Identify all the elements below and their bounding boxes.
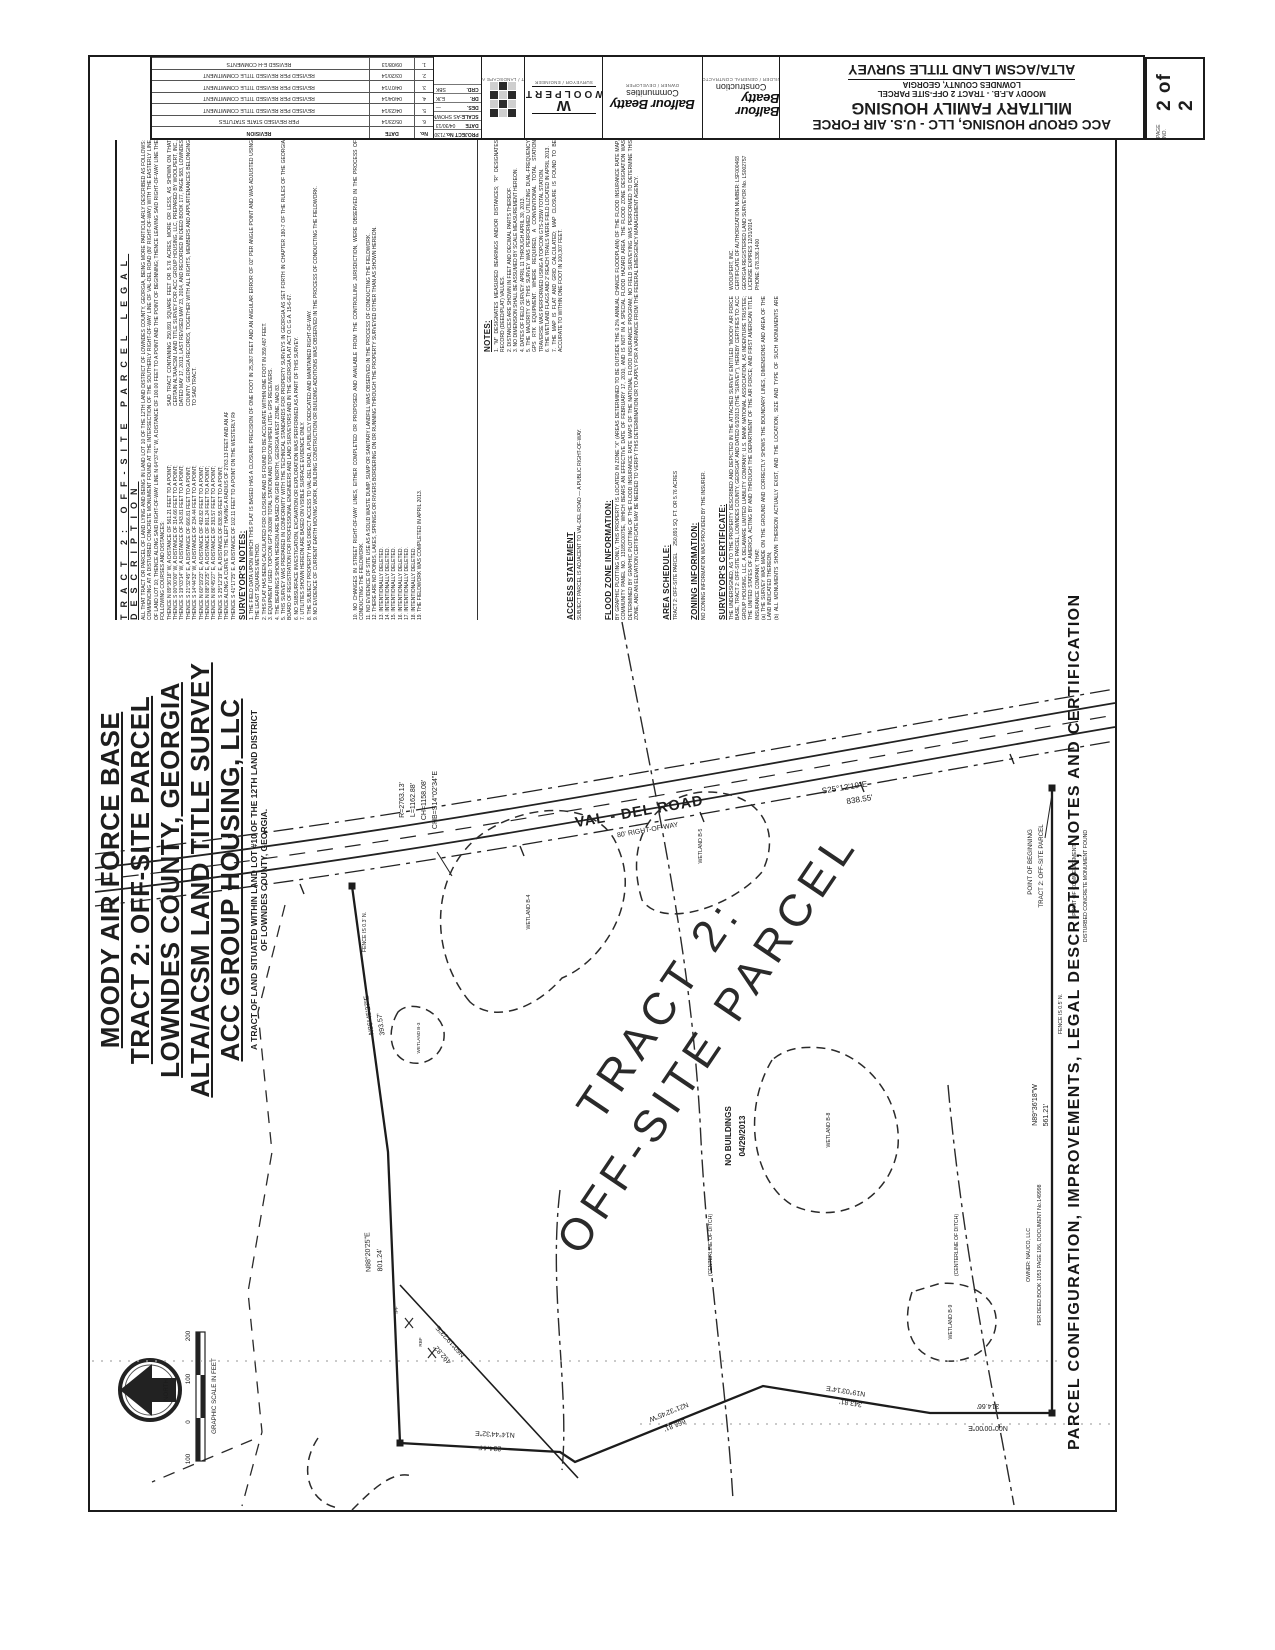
zoning-text: NO ZONING INFORMATION WAS PROVIDED BY TH… bbox=[701, 140, 707, 620]
revision-table-body: 6.05/23/14PER REVISED STATE STATUTES5.04… bbox=[152, 58, 433, 127]
title-block-strip: ACC GROUP HOUSING, LLC - U.S. AIR FORCE … bbox=[150, 55, 1145, 140]
balfour-communities-sub: Communities bbox=[626, 89, 679, 99]
svg-text:RBF: RBF bbox=[418, 1337, 423, 1346]
legal-description-calls: THENCE N 89°36'18" W, A DISTANCE OF 561.… bbox=[167, 412, 235, 620]
date: 05/23/14 bbox=[369, 116, 414, 127]
tract-2-big-label: TRACT 2: OFF-SITE PARCEL bbox=[498, 788, 868, 1263]
svg-text:234.44': 234.44' bbox=[478, 1443, 501, 1451]
table-row: DATE04/30/13 bbox=[434, 120, 481, 129]
text-line: 9. NO EVIDENCE OF CURRENT EARTH MOVING W… bbox=[313, 140, 319, 620]
svg-text:0: 0 bbox=[185, 1420, 192, 1424]
text-line: 1. "M" DESIGNATES MEASURED BEARINGS AND/… bbox=[494, 140, 507, 352]
legal-description-closing: SAID TRACT CONTAINING 250,891 SQUARE FEE… bbox=[167, 140, 199, 406]
parcel-boundary bbox=[349, 785, 1055, 1478]
table-row: 4.04/04/14REVISED PER REVISED TITLE COMM… bbox=[152, 92, 433, 104]
svg-text:OFF-SITE PARCEL: OFF-SITE PARCEL bbox=[546, 820, 867, 1262]
revision-table: No. DATE REVISION 6.05/23/14PER REVISED … bbox=[152, 57, 433, 138]
balfour-communities-logo-cell: Balfour Beatty Communities OWNER / DEVEL… bbox=[602, 57, 702, 138]
svg-text:WETLAND B-9: WETLAND B-9 bbox=[948, 1304, 954, 1339]
access-statement-section: ACCESS STATEMENT SUBJECT PARCEL IS ADJAC… bbox=[566, 395, 602, 620]
svg-text:343.81': 343.81' bbox=[839, 1397, 863, 1407]
text-line: CERTIFICATE OF AUTHORIZATION NUMBER: LSF… bbox=[735, 140, 741, 290]
svg-text:CHB=S14°02'34"E: CHB=S14°02'34"E bbox=[431, 771, 439, 830]
svg-text:801.24': 801.24' bbox=[377, 1249, 385, 1272]
area-schedule-row: TRACT 2: OFF-SITE PARCEL 250,891 SQ. FT.… bbox=[673, 140, 679, 620]
svg-text:N00°00'00"E: N00°00'00"E bbox=[968, 1424, 1008, 1432]
text-line: (a) THE SURVEY WAS MADE ON THE GROUND AN… bbox=[761, 296, 774, 620]
area-schedule-value: 250,891 SQ. FT. OR 5.76 ACRES bbox=[673, 471, 679, 546]
survey-map: VAL - DEL ROAD 80' RIGHT-OF-WAY S25°12'1… bbox=[88, 600, 1118, 1512]
graphic-scale-bar: 200 100 0 100 GRAPHIC SCALE IN FEET bbox=[185, 1330, 218, 1464]
certificate-items: (a) THE SURVEY WAS MADE ON THE GROUND AN… bbox=[761, 296, 780, 620]
svg-text:100: 100 bbox=[185, 1373, 192, 1384]
svg-text:GRAPHIC SCALE IN FEET: GRAPHIC SCALE IN FEET bbox=[211, 1358, 218, 1434]
balfour-construction-logo: Balfour Beatty bbox=[703, 92, 780, 118]
parcel-title: MOODY A.F.B. - TRACT 2 OFF-SITE PARCEL bbox=[878, 90, 1046, 99]
no: 6. bbox=[414, 116, 433, 127]
balfour-communities-logo: Balfour Beatty bbox=[610, 99, 695, 112]
page-number: PAGE NO. 2 of 2 bbox=[1147, 57, 1205, 138]
notes-items: 1. "M" DESIGNATES MEASURED BEARINGS AND/… bbox=[494, 140, 563, 352]
text-line: 19. THE FIELDWORK WAS COMPLETED IN APRIL… bbox=[417, 140, 423, 620]
text-line: THENCE ALONG A CURVE TO THE LEFT HAVING … bbox=[224, 412, 230, 620]
value: — bbox=[436, 104, 441, 110]
project-title-block: ACC GROUP HOUSING, LLC - U.S. AIR FORCE … bbox=[779, 57, 1143, 138]
svg-text:POINT OF BEGINNING: POINT OF BEGINNING bbox=[1027, 829, 1034, 895]
svg-text:DISTURBED CONCRETE MONUMENT FO: DISTURBED CONCRETE MONUMENT FOUND bbox=[1083, 830, 1089, 943]
svg-text:IPF: IPF bbox=[394, 1306, 399, 1313]
date: 04/07/14 bbox=[369, 82, 414, 93]
access-statement-text: SUBJECT PARCEL IS ADJACENT TO VAL-DEL RO… bbox=[577, 395, 583, 620]
svg-text:WETLAND B-4: WETLAND B-4 bbox=[526, 894, 532, 929]
area-schedule-heading: AREA SCHEDULE: bbox=[662, 140, 671, 620]
balfour-construction-sub: Construction bbox=[716, 82, 767, 92]
desc: REVISED E-H COMMENTS bbox=[152, 59, 369, 70]
surveyors-certificate-heading: SURVEYOR'S CERTIFICATE: bbox=[718, 140, 727, 620]
client-title: ACC GROUP HOUSING, LLC - U.S. AIR FORCE bbox=[812, 118, 1111, 133]
date: 03/20/14 bbox=[369, 70, 414, 81]
revision-col-date: DATE bbox=[369, 128, 414, 139]
legal-description-heading: TRACT 2: OFF-SITE PARCEL LEGAL DESCRIPTI… bbox=[119, 140, 139, 620]
svg-text:N88°20'25"E: N88°20'25"E bbox=[363, 1232, 372, 1272]
svg-text:(CENTERLINE OF DITCH): (CENTERLINE OF DITCH) bbox=[708, 1214, 714, 1277]
woolpert-caption: SURVEYOR / ENGINEER bbox=[535, 80, 593, 85]
desc: PER REVISED STATE STATUTES bbox=[152, 116, 369, 127]
date: 09/08/13 bbox=[369, 59, 414, 70]
surveyors-notes-section: SURVEYOR'S NOTES: 1. THE FIELD DATA UPON… bbox=[238, 140, 350, 620]
scanned-survey-page: { "title_strip": { "title_block": { "lin… bbox=[0, 0, 1275, 1650]
svg-text:WETLAND B-5: WETLAND B-5 bbox=[698, 828, 704, 863]
no: 5. bbox=[414, 105, 433, 116]
table-row: DES.— bbox=[434, 102, 481, 111]
woolpert-logo-cell: W WOOLPERT SURVEYOR / ENGINEER bbox=[524, 57, 602, 138]
access-statement-heading: ACCESS STATEMENT bbox=[566, 395, 575, 620]
project-title: MILITARY FAMILY HOUSING bbox=[851, 99, 1072, 118]
label: DES. bbox=[467, 104, 479, 110]
communities-caption: OWNER / DEVELOPER bbox=[626, 84, 680, 89]
svg-text:VAL - DEL ROAD: VAL - DEL ROAD bbox=[574, 793, 705, 831]
zoning-heading: ZONING INFORMATION: bbox=[690, 140, 699, 620]
svg-text:S25°12'19"E: S25°12'19"E bbox=[821, 779, 868, 795]
svg-text:FENCE IS 0.5' N.: FENCE IS 0.5' N. bbox=[1058, 994, 1064, 1034]
date: 04/23/14 bbox=[369, 105, 414, 116]
no: 2. bbox=[414, 70, 433, 81]
text-line: 6. THE WETLAND FLAGS AND 2' REACH TRAILS… bbox=[545, 140, 551, 352]
desc: REVISED PER REVISED TITLE COMMITMENT bbox=[152, 70, 369, 81]
county-title: LOWNDES COUNTY, GEORGIA bbox=[903, 81, 1021, 90]
date: 04/04/14 bbox=[369, 93, 414, 104]
svg-text:N89°36'18"W: N89°36'18"W bbox=[1031, 1084, 1039, 1126]
label: SCALE: bbox=[460, 113, 479, 119]
svg-text:666.81': 666.81' bbox=[663, 1417, 687, 1432]
svg-text:POINT OF COMMENCEMENT: POINT OF COMMENCEMENT bbox=[1072, 843, 1078, 915]
flood-zone-heading: FLOOD ZONE INFORMATION: bbox=[604, 140, 613, 620]
text-line: 10. NO CHANGES IN STREET RIGHT-OF-WAY LI… bbox=[353, 140, 366, 620]
zoning-section: ZONING INFORMATION: NO ZONING INFORMATIO… bbox=[690, 140, 716, 620]
no: 3. bbox=[414, 82, 433, 93]
desc: REVISED PER REVISED TITLE COMMITMENT bbox=[152, 82, 369, 93]
flood-zone-text: BY GRAPHIC PLOTTING ONLY, THIS PROPERTY … bbox=[615, 140, 641, 620]
revision-table-header: No. DATE REVISION bbox=[152, 127, 433, 139]
certificate-firm-block: WOOLPERT, INC.CERTIFICATE OF AUTHORIZATI… bbox=[729, 140, 761, 290]
table-row: CRD.SBK bbox=[434, 84, 481, 93]
value: SBK bbox=[436, 86, 446, 92]
notes-heading: NOTES: bbox=[483, 140, 492, 352]
svg-text:PER DEED BOOK 1053 PAGE 186, D: PER DEED BOOK 1053 PAGE 186, DOCUMENT No… bbox=[1037, 1184, 1043, 1325]
woolpert-logo: WOOLPERT bbox=[524, 88, 602, 99]
area-schedule-section: AREA SCHEDULE: TRACT 2: OFF-SITE PARCEL … bbox=[662, 140, 688, 620]
legal-description-intro: ALL THAT TRACT OR PARCEL OF LAND LYING A… bbox=[141, 140, 167, 620]
svg-text:TRACT 2: OFF-SITE PARCEL: TRACT 2: OFF-SITE PARCEL bbox=[1038, 824, 1045, 908]
svg-text:CH=1158.08': CH=1158.08' bbox=[421, 780, 428, 820]
label: PROJECT No. bbox=[446, 131, 479, 137]
text-line: PHONE: 678.336.1400 bbox=[755, 140, 761, 290]
revision-col-desc: REVISION bbox=[152, 128, 369, 139]
svg-text:WETLAND B-3: WETLAND B-3 bbox=[416, 1022, 421, 1053]
page-number-value: 2 of 2 bbox=[1154, 57, 1198, 111]
svg-text:200: 200 bbox=[185, 1330, 192, 1341]
revision-col-no: No. bbox=[414, 128, 433, 139]
svg-text:(CENTERLINE OF DITCH): (CENTERLINE OF DITCH) bbox=[954, 1214, 960, 1277]
woolpert-w-icon: W bbox=[557, 99, 571, 112]
balfour-construction-logo-cell: Balfour Beatty Construction BUILDER / GE… bbox=[702, 57, 780, 138]
notes-panel: TRACT 2: OFF-SITE PARCEL LEGAL DESCRIPTI… bbox=[115, 140, 782, 620]
notes-section: NOTES: 1. "M" DESIGNATES MEASURED BEARIN… bbox=[483, 140, 563, 352]
table-row: 3.04/07/14REVISED PER REVISED TITLE COMM… bbox=[152, 81, 433, 93]
svg-text:100: 100 bbox=[185, 1453, 192, 1464]
svg-text:NO BUILDINGS: NO BUILDINGS bbox=[724, 1106, 733, 1166]
svg-text:N14°44'32"E: N14°44'32"E bbox=[475, 1429, 515, 1439]
svg-text:FENCE IS 0.3' N.: FENCE IS 0.3' N. bbox=[362, 912, 368, 952]
table-row: 2.03/20/14REVISED PER REVISED TITLE COMM… bbox=[152, 69, 433, 81]
map-annotations: NO BUILDINGS 04/29/2013 POINT OF BEGINNI… bbox=[362, 794, 1089, 1347]
table-row: PROJECT No.71307 bbox=[434, 129, 481, 138]
value: 04/30/13 bbox=[436, 122, 455, 128]
svg-text:WETLAND B-8: WETLAND B-8 bbox=[826, 1112, 832, 1147]
table-row: 1.09/08/13REVISED E-H COMMENTS bbox=[152, 58, 433, 70]
text-line: (b) ALL MONUMENTS SHOWN THEREON ACTUALLY… bbox=[774, 296, 780, 620]
svg-text:838.55': 838.55' bbox=[846, 793, 874, 806]
project-info-cell: PROJECT No.71307DATE04/30/13SCALE:AS SHO… bbox=[433, 57, 481, 138]
text-line: 3. NO DIMENSION SHALL BE ASSUMED BY SCAL… bbox=[513, 140, 519, 352]
text-line: 7. THE MAP IS FLAT AND GRID CALCULATED; … bbox=[552, 140, 563, 352]
flood-zone-section: FLOOD ZONE INFORMATION: BY GRAPHIC PLOTT… bbox=[604, 140, 660, 620]
value: EJK bbox=[436, 95, 445, 101]
surveyors-notes-continued: 10. NO CHANGES IN STREET RIGHT-OF-WAY LI… bbox=[353, 140, 473, 620]
text-line: 5. THE MAJORITY OF THIS SURVEY WAS PERFO… bbox=[526, 140, 545, 352]
svg-text:N86°45'27"E: N86°45'27"E bbox=[362, 995, 375, 1036]
page-number-label: PAGE NO. bbox=[1156, 115, 1168, 138]
certificate-intro: THE UNDERSIGNED, AS TO THE PROPERTY DESC… bbox=[729, 296, 761, 620]
surveyors-notes-heading: SURVEYOR'S NOTES: bbox=[238, 140, 247, 620]
table-row: 6.05/23/14PER REVISED STATE STATUTES bbox=[152, 115, 433, 127]
label: DR. bbox=[470, 95, 479, 101]
desc: REVISED PER REVISED TITLE COMMITMENT bbox=[152, 93, 369, 104]
text-line: THENCE S 41°17'25" E, A DISTANCE OF 102.… bbox=[231, 412, 235, 620]
table-row: SCALE:AS SHOWN bbox=[434, 111, 481, 120]
checker-logo-icon bbox=[490, 83, 516, 118]
survey-type-title: ALTA/ACSM LAND TITLE SURVEY bbox=[848, 63, 1075, 81]
construction-caption: BUILDER / GENERAL CONTRACTOR bbox=[702, 77, 780, 82]
scan-artifact-dots bbox=[92, 1361, 1113, 1424]
north-arrow: NORTH bbox=[120, 1360, 180, 1420]
svg-text:L=1162.88': L=1162.88' bbox=[410, 783, 417, 817]
svg-text:561.21': 561.21' bbox=[1043, 1104, 1050, 1127]
label: CRD. bbox=[466, 86, 478, 92]
table-row: DR.EJK bbox=[434, 93, 481, 102]
notes-divider-rule bbox=[477, 140, 478, 620]
desc: REVISED PER REVISED TITLE COMMITMENT bbox=[152, 105, 369, 116]
svg-text:R=2763.13': R=2763.13' bbox=[399, 782, 406, 818]
text-line: 5. THIS SURVEY WAS PREPARED IN CONFORMIT… bbox=[281, 140, 294, 620]
table-row: 5.04/23/14REVISED PER REVISED TITLE COMM… bbox=[152, 104, 433, 116]
label: DATE bbox=[465, 122, 478, 128]
architect-logo-cell: ARCHITECT / LANDSCAPE ARCHITECT bbox=[481, 57, 525, 138]
value: AS SHOWN bbox=[434, 113, 460, 119]
no: 1. bbox=[414, 59, 433, 70]
svg-text:393.57': 393.57' bbox=[376, 1012, 386, 1036]
value: 71307 bbox=[434, 131, 446, 137]
svg-text:04/29/2013: 04/29/2013 bbox=[738, 1115, 747, 1156]
svg-text:OWNER: NAUCO, LLC: OWNER: NAUCO, LLC bbox=[1026, 1228, 1032, 1282]
fence-and-ditch-lines bbox=[152, 622, 1014, 1506]
surveyors-certificate-section: SURVEYOR'S CERTIFICATE: WOOLPERT, INC.CE… bbox=[718, 140, 780, 620]
architect-caption: ARCHITECT / LANDSCAPE ARCHITECT bbox=[481, 78, 525, 83]
legal-description-section: TRACT 2: OFF-SITE PARCEL LEGAL DESCRIPTI… bbox=[119, 140, 235, 620]
text-line: 1. THE FIELD DATA UPON WHICH THIS PLAT I… bbox=[249, 140, 262, 620]
no: 4. bbox=[414, 93, 433, 104]
woolpert-rule-bottom bbox=[532, 86, 596, 87]
svg-text:NORTH: NORTH bbox=[163, 1379, 170, 1401]
road-val-del bbox=[95, 689, 1115, 910]
surveyors-notes-items: 1. THE FIELD DATA UPON WHICH THIS PLAT I… bbox=[249, 140, 319, 620]
